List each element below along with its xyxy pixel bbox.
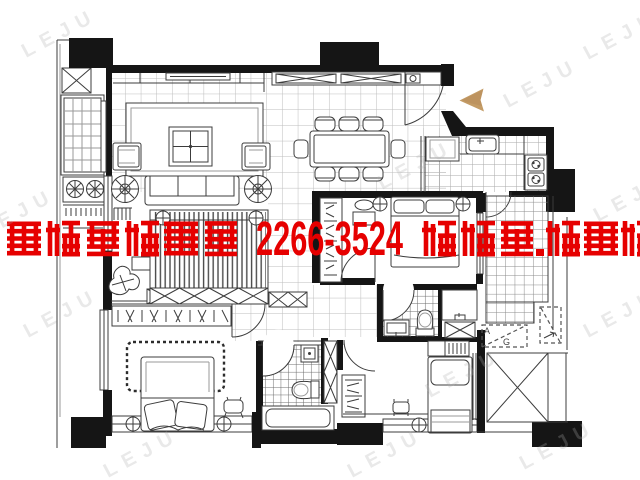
svg-text:LEJU: LEJU: [20, 284, 104, 342]
svg-text:A: A: [484, 326, 490, 336]
svg-text:LEJU: LEJU: [580, 284, 640, 342]
svg-text:LEJU: LEJU: [590, 168, 640, 226]
svg-text:LEJU: LEJU: [500, 54, 584, 112]
svg-text:G: G: [503, 337, 510, 347]
svg-text:LEJU: LEJU: [580, 6, 640, 64]
svg-text:2266-3524: 2266-3524: [256, 213, 403, 266]
